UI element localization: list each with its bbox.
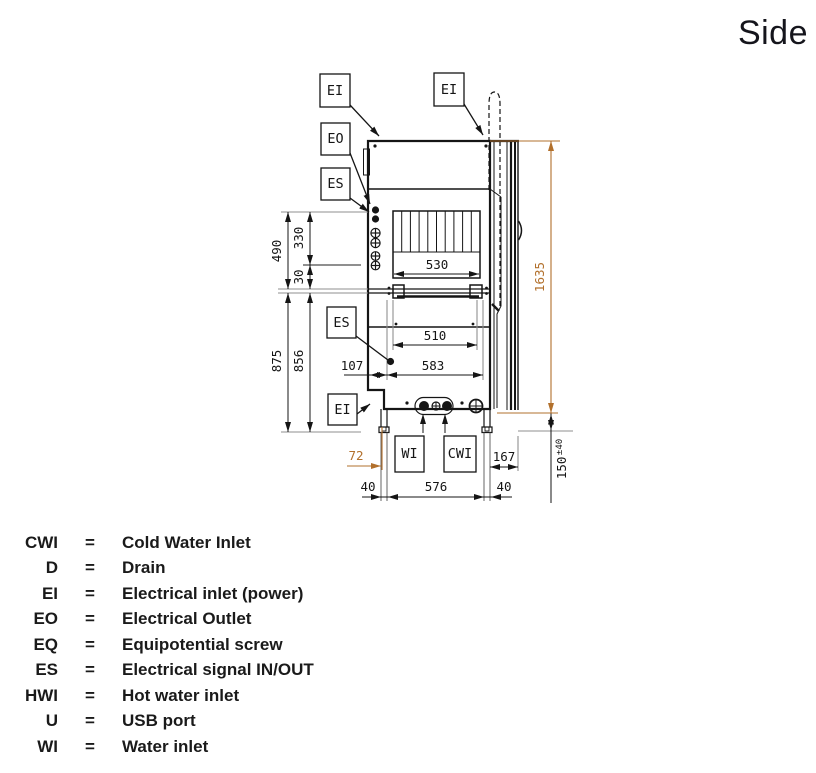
label-eo: EO bbox=[327, 131, 343, 147]
legend-desc: Water inlet bbox=[122, 737, 480, 757]
legend-abbr: U bbox=[0, 711, 58, 731]
dim-40-left: 40 bbox=[360, 479, 375, 494]
legend-row: ES=Electrical signal IN/OUT bbox=[0, 658, 480, 684]
legend-row: HWI=Hot water inlet bbox=[0, 683, 480, 709]
dim-30: 30 bbox=[291, 269, 306, 284]
equipotential-screw-icon bbox=[371, 238, 380, 247]
legend-desc: Cold Water Inlet bbox=[122, 533, 480, 553]
legend-abbr: ES bbox=[0, 660, 58, 680]
dimensions-accent bbox=[347, 141, 560, 470]
legend-equals: = bbox=[58, 737, 122, 757]
legend-equals: = bbox=[58, 635, 122, 655]
legend-equals: = bbox=[58, 558, 122, 578]
label-wi: WI bbox=[401, 446, 417, 462]
legend-equals: = bbox=[58, 686, 122, 706]
rack-rails bbox=[368, 285, 490, 298]
page: Side bbox=[0, 0, 816, 773]
dim-583: 583 bbox=[422, 358, 445, 373]
legend-equals: = bbox=[58, 609, 122, 629]
legend-abbr: D bbox=[0, 558, 58, 578]
legend-equals: = bbox=[58, 711, 122, 731]
legend-desc: Electrical Outlet bbox=[122, 609, 480, 629]
legend-desc: Hot water inlet bbox=[122, 686, 480, 706]
water-connections bbox=[405, 398, 482, 415]
door-front-panel bbox=[494, 141, 522, 410]
label-ei-bottom: EI bbox=[334, 402, 350, 418]
legend-abbr: EO bbox=[0, 609, 58, 629]
dim-875: 875 bbox=[269, 350, 284, 373]
legend-row: EI=Electrical inlet (power) bbox=[0, 581, 480, 607]
legend-desc: Electrical signal IN/OUT bbox=[122, 660, 480, 680]
dim-107: 107 bbox=[341, 358, 364, 373]
dim-40-right: 40 bbox=[496, 479, 511, 494]
legend-row: D=Drain bbox=[0, 556, 480, 582]
equipotential-screw-icon bbox=[371, 261, 380, 270]
legend-desc: Drain bbox=[122, 558, 480, 578]
legend-abbr: EQ bbox=[0, 635, 58, 655]
legend-abbr: WI bbox=[0, 737, 58, 757]
legend-row: WI=Water inlet bbox=[0, 734, 480, 760]
legend-desc: Equipotential screw bbox=[122, 635, 480, 655]
dim-330: 330 bbox=[291, 227, 306, 250]
legend-desc: Electrical inlet (power) bbox=[122, 584, 480, 604]
label-ei-upper-left: EI bbox=[327, 83, 343, 99]
electrical-connectors bbox=[371, 206, 380, 269]
legend-row: U=USB port bbox=[0, 709, 480, 735]
label-ei-upper-right: EI bbox=[441, 82, 457, 98]
dim-167: 167 bbox=[493, 449, 516, 464]
dim-1635: 1635 bbox=[532, 262, 547, 292]
legend-equals: = bbox=[58, 533, 122, 553]
label-es-upper: ES bbox=[327, 176, 343, 192]
label-cwi: CWI bbox=[448, 446, 472, 462]
equipotential-screw-icon bbox=[371, 228, 380, 237]
legend-row: EO=Electrical Outlet bbox=[0, 607, 480, 633]
side-view-technical-drawing: 490 330 30 875 856 530 510 583 107 40 57… bbox=[0, 0, 816, 528]
dim-490: 490 bbox=[269, 240, 284, 263]
legend-abbr: EI bbox=[0, 584, 58, 604]
legend-abbr: CWI bbox=[0, 533, 58, 553]
dim-576: 576 bbox=[425, 479, 448, 494]
dim-510: 510 bbox=[424, 328, 447, 343]
drain-connection bbox=[470, 400, 483, 413]
es-signal-point bbox=[387, 358, 394, 365]
legend-row: CWI=Cold Water Inlet bbox=[0, 530, 480, 556]
label-es-mid: ES bbox=[333, 315, 349, 331]
legend-row: EQ=Equipotential screw bbox=[0, 632, 480, 658]
dim-856: 856 bbox=[291, 350, 306, 373]
equipotential-screw-icon bbox=[371, 252, 380, 261]
legend-equals: = bbox=[58, 584, 122, 604]
legend-desc: USB port bbox=[122, 711, 480, 731]
legend-abbr: HWI bbox=[0, 686, 58, 706]
door-handle bbox=[519, 221, 522, 240]
dim-72: 72 bbox=[348, 448, 363, 463]
dim-150: 150±40 bbox=[554, 439, 569, 479]
legend-equals: = bbox=[58, 660, 122, 680]
abbreviation-legend: CWI=Cold Water Inlet D=Drain EI=Electric… bbox=[0, 530, 480, 760]
dim-530: 530 bbox=[426, 257, 449, 272]
counter-line bbox=[368, 323, 490, 327]
